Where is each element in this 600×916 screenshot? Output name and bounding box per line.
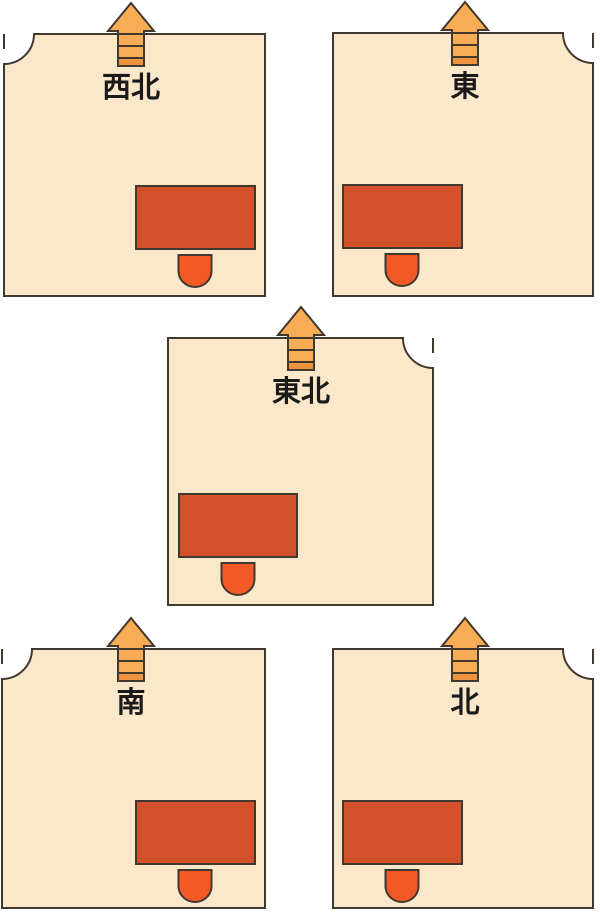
direction-label: 北 xyxy=(450,686,479,719)
chair xyxy=(179,870,212,902)
chair xyxy=(386,254,419,286)
room-east: 東 xyxy=(333,2,593,296)
floor-plan-page: 西北 東 東北 xyxy=(0,0,600,916)
desk xyxy=(343,801,462,864)
desk xyxy=(343,185,462,248)
arrow-base-band xyxy=(453,674,477,680)
room-northeast: 東北 xyxy=(168,307,433,605)
chair xyxy=(386,870,419,902)
desk xyxy=(179,494,297,557)
arrow-base-band xyxy=(119,59,143,65)
arrow-base-band xyxy=(119,674,143,680)
room-north: 北 xyxy=(333,618,593,908)
arrow-base-band xyxy=(289,363,313,369)
floor-plan-diagrams: 西北 東 東北 xyxy=(0,0,600,916)
arrow-base-band xyxy=(453,58,477,64)
chair xyxy=(222,563,255,595)
desk xyxy=(136,186,255,249)
room-south: 南 xyxy=(2,618,265,908)
chair xyxy=(179,255,212,287)
room-northwest: 西北 xyxy=(4,3,265,296)
direction-label: 東 xyxy=(450,70,479,103)
direction-label: 西北 xyxy=(102,71,160,104)
direction-label: 南 xyxy=(116,686,145,719)
direction-label: 東北 xyxy=(272,375,330,408)
desk xyxy=(136,801,255,864)
